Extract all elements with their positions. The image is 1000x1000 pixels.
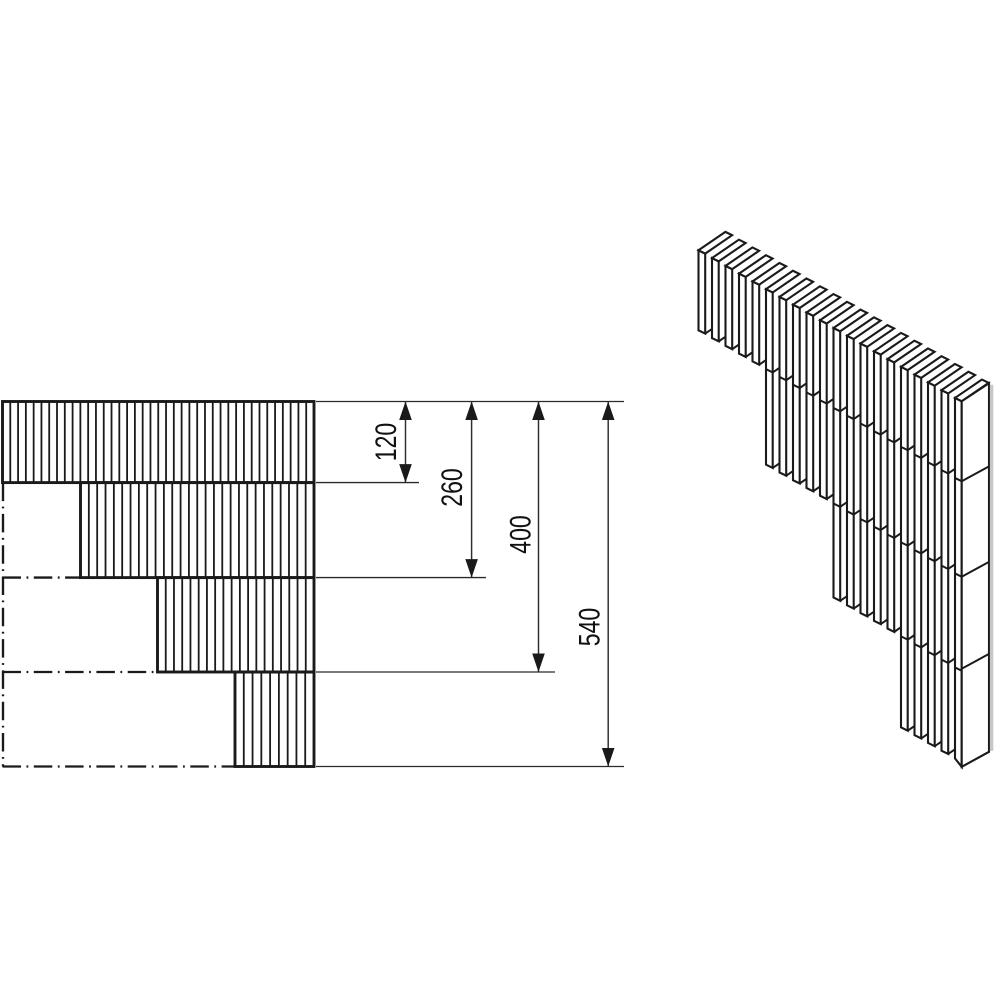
svg-text:120: 120 — [369, 423, 403, 462]
svg-text:260: 260 — [435, 468, 469, 507]
svg-text:540: 540 — [573, 608, 607, 647]
svg-text:400: 400 — [504, 515, 538, 554]
